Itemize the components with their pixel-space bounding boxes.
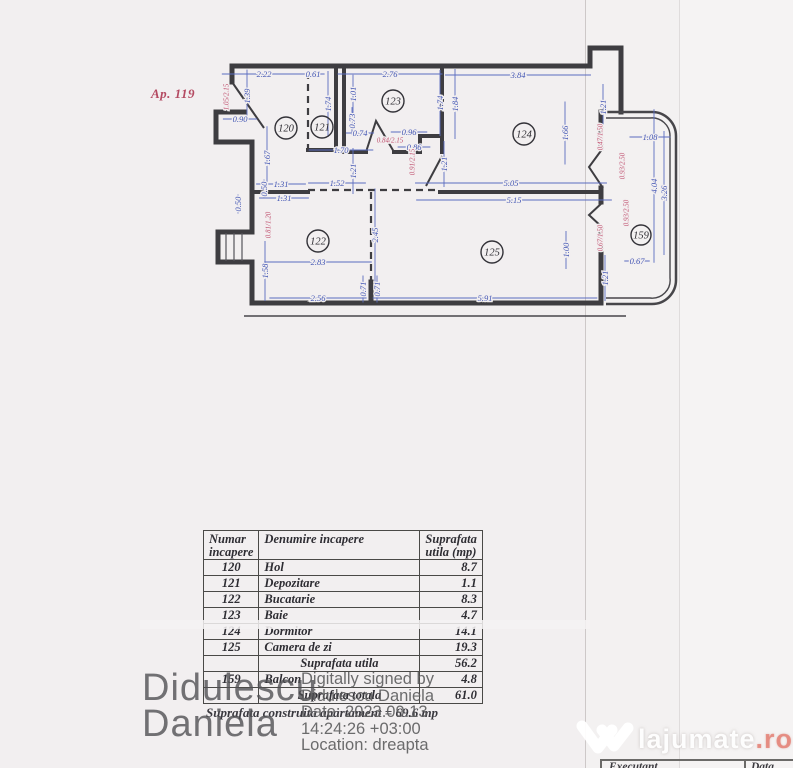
scanned-floorplan-page: 2.220.612.763.841.390.901.671.741.010.73… [0, 0, 793, 768]
dimension-label: 5.15 [507, 195, 522, 205]
dimension-label: 1.05/2.15 [222, 83, 230, 110]
dimension-label: 1.70 [334, 145, 350, 155]
table-row: 125Camera de zi19.3 [204, 639, 483, 655]
room-number: 159 [633, 231, 650, 242]
dimension-label: 1.08 [643, 132, 659, 142]
dimension-label: 1.01 [348, 87, 358, 102]
watermark-brand: lajumate.ro [638, 724, 793, 755]
header-denumire-incapere: Denumire incapere [259, 531, 420, 560]
dimension-label: 0.71 [372, 282, 382, 297]
dimension-label: 1.21 [348, 164, 358, 179]
footer-table-border [600, 759, 602, 768]
apartment-number-label: Ap. 119 [151, 86, 195, 102]
dimension-label: 1.31 [274, 179, 289, 189]
header-numar-incapere: Numar incapere [204, 531, 259, 560]
digital-signature-line: 14:24:26 +03:00 [301, 721, 434, 738]
dimension-label: 0.71 [358, 282, 368, 297]
watermark: lajumate.ro [572, 714, 793, 764]
digital-signature-line: Location: dreapta [301, 737, 434, 754]
digital-signature-line: Didulescu Daniela [301, 688, 434, 705]
table-cell: Camera de zi [259, 639, 420, 655]
table-row: 120Hol8.7 [204, 559, 483, 575]
dimension-label: 1.21 [439, 157, 449, 172]
dimension-label: 1.21 [598, 100, 608, 115]
dimension-label: 1.52 [330, 178, 346, 188]
dimension-label: 2.56 [311, 293, 327, 303]
table-cell: 56.2 [420, 655, 482, 671]
footer-table-border [744, 759, 746, 768]
dimension-label: 4.04 [649, 178, 659, 194]
footer-executant-label: Executant [609, 761, 658, 768]
header-suprafata-utila: Suprafata utila (mp) [420, 531, 482, 560]
table-cell: Hol [259, 559, 420, 575]
dimension-label: 0.93/2.50 [622, 199, 630, 226]
table-cell: 122 [204, 591, 259, 607]
dimension-label: 2.76 [383, 69, 399, 79]
digital-signature-line: Digitally signed by [301, 671, 434, 688]
dimension-label: 1.00 [561, 242, 571, 258]
dimension-label: 0.61 [306, 69, 321, 79]
dimension-label: 0.50 [233, 196, 243, 212]
door-window-labels: 1.05/2.150.84/2.150.91/2.150.81/1.200.47… [222, 83, 630, 251]
dimension-label: 3.84 [510, 70, 527, 80]
dimension-label: 1.66 [560, 125, 570, 141]
dimension-label: 0.81/1.20 [264, 211, 272, 238]
table-cell: 125 [204, 639, 259, 655]
dimension-label: 0.47/1.50 [596, 123, 604, 150]
scan-fold-artifact [140, 620, 590, 629]
table-row: 121Depozitare1.1 [204, 575, 483, 591]
window-hatch [226, 233, 242, 261]
dimension-label: 5.05 [504, 178, 519, 188]
balcony-outline [244, 112, 676, 316]
digital-signature-block: Digitally signed byDidulescu DanielaDate… [301, 671, 434, 754]
dimension-label: 1.31 [277, 193, 292, 203]
interior-walls [252, 66, 601, 192]
dimension-label: 1.84 [450, 96, 460, 112]
dimension-labels: 2.220.612.763.841.390.901.671.741.010.73… [233, 69, 669, 303]
room-number: 125 [484, 248, 500, 259]
room-number: 123 [385, 97, 401, 108]
table-cell: Depozitare [259, 575, 420, 591]
table-cell: 121 [204, 575, 259, 591]
dimension-label: 2.45 [370, 228, 380, 243]
dimension-label: 0.74 [353, 128, 369, 138]
signer-name-stamp: Didulescu Daniela [142, 670, 318, 742]
room-number: 121 [314, 123, 330, 134]
stamp-line: Daniela [142, 706, 318, 742]
lajumate-logo-icon [572, 714, 638, 764]
dimension-label: 1.74 [435, 95, 445, 111]
dimension-label: 0.50 [259, 181, 269, 197]
room-number: 124 [516, 130, 533, 141]
table-row: 122Bucatarie8.3 [204, 591, 483, 607]
table-cell: 8.7 [420, 559, 482, 575]
table-cell: 120 [204, 559, 259, 575]
table-cell: 1.1 [420, 575, 482, 591]
table-cell: 8.3 [420, 591, 482, 607]
dimension-label: 0.73 [347, 114, 357, 129]
dimension-label: 0.90 [233, 114, 249, 124]
dimension-label: 1.39 [242, 88, 252, 104]
dimension-label: 1.67 [262, 150, 272, 166]
dimension-label: 0.84/2.15 [377, 136, 404, 144]
dimension-label: 1.58 [260, 263, 270, 279]
room-number: 120 [278, 124, 295, 135]
dimension-label: 2.22 [257, 69, 273, 79]
dimension-label: 1.21 [600, 271, 610, 286]
dimension-label: 2.83 [311, 257, 326, 267]
door-leaves [232, 82, 603, 228]
table-cell: 19.3 [420, 639, 482, 655]
table-header-row: Numar incapere Denumire incapere Suprafa… [204, 531, 483, 560]
footer-data-label: Data [751, 761, 774, 768]
dimension-label: 3.26 [659, 185, 669, 202]
dimension-label: 1.74 [323, 96, 333, 112]
table-cell: Bucatarie [259, 591, 420, 607]
watermark-tld: .ro [756, 724, 793, 754]
room-number: 122 [310, 237, 327, 248]
dimension-label: 5.91 [478, 293, 493, 303]
stamp-line: Didulescu [142, 670, 318, 706]
dimension-label: 0.96 [402, 127, 418, 137]
dimension-label: 0.93/2.50 [618, 152, 626, 179]
outer-walls [216, 48, 621, 303]
dimension-label: 0.91/2.15 [408, 148, 416, 175]
dimension-label: 0.67/1.50 [596, 224, 604, 251]
dimension-label: 0.67 [630, 256, 646, 266]
digital-signature-line: Date: 2023.09.13 [301, 704, 434, 721]
